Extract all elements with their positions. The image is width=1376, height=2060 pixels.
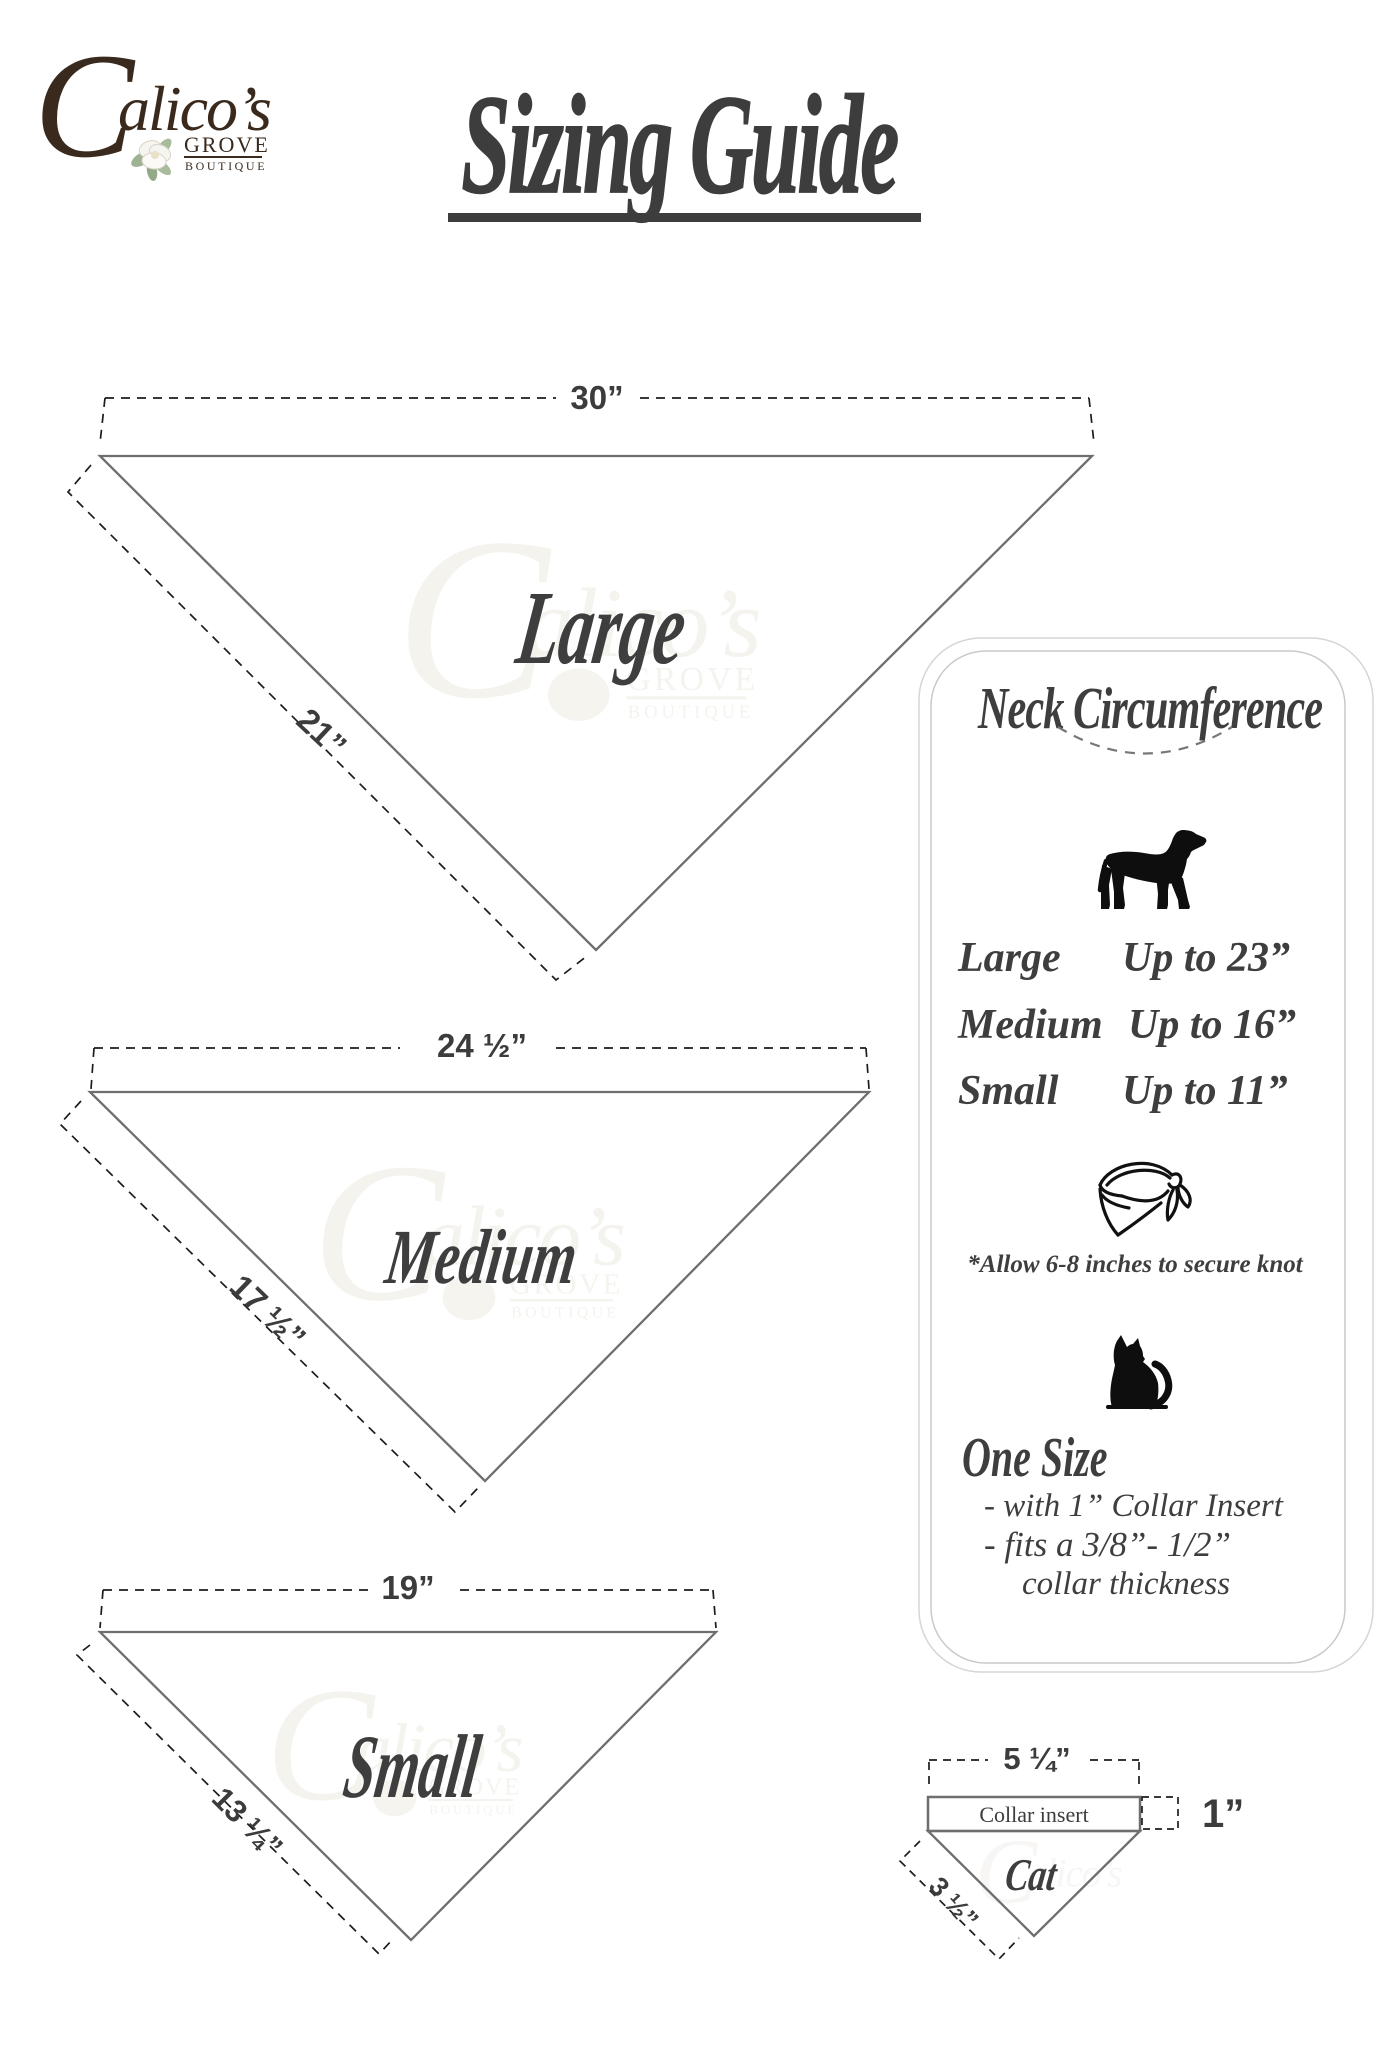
svg-text:Large: Large — [510, 570, 693, 687]
svg-text:Sizing Guide: Sizing Guide — [461, 66, 897, 223]
svg-text:24 ½”: 24 ½” — [437, 1027, 527, 1064]
svg-text:- with 1” Collar Insert: - with 1” Collar Insert — [984, 1488, 1284, 1524]
svg-text:- fits a 3/8”- 1/2”: - fits a 3/8”- 1/2” — [984, 1525, 1231, 1564]
svg-text:Neck Circumference: Neck Circumference — [977, 676, 1322, 742]
svg-text:Up to 23”: Up to 23” — [1122, 935, 1290, 981]
svg-text:19”: 19” — [381, 1569, 434, 1606]
svg-text:Large: Large — [957, 935, 1061, 981]
svg-text:30”: 30” — [570, 379, 623, 416]
svg-text:collar thickness: collar thickness — [1022, 1566, 1230, 1602]
svg-text:Up to 11”: Up to 11” — [1122, 1068, 1288, 1114]
svg-text:*Allow 6-8 inches to secure kn: *Allow 6-8 inches to secure knot — [967, 1251, 1303, 1278]
svg-text:Small: Small — [958, 1068, 1059, 1114]
svg-text:5 ¼”: 5 ¼” — [1003, 1741, 1070, 1776]
svg-text:Cat: Cat — [1002, 1850, 1061, 1900]
svg-text:Small: Small — [338, 1717, 486, 1817]
svg-text:1”: 1” — [1202, 1792, 1244, 1836]
svg-text:Up to 16”: Up to 16” — [1128, 1002, 1296, 1048]
svg-text:Collar insert: Collar insert — [979, 1802, 1088, 1827]
svg-text:Medium: Medium — [380, 1213, 582, 1300]
svg-text:One Size: One Size — [962, 1427, 1108, 1489]
svg-text:Medium: Medium — [957, 1002, 1103, 1048]
